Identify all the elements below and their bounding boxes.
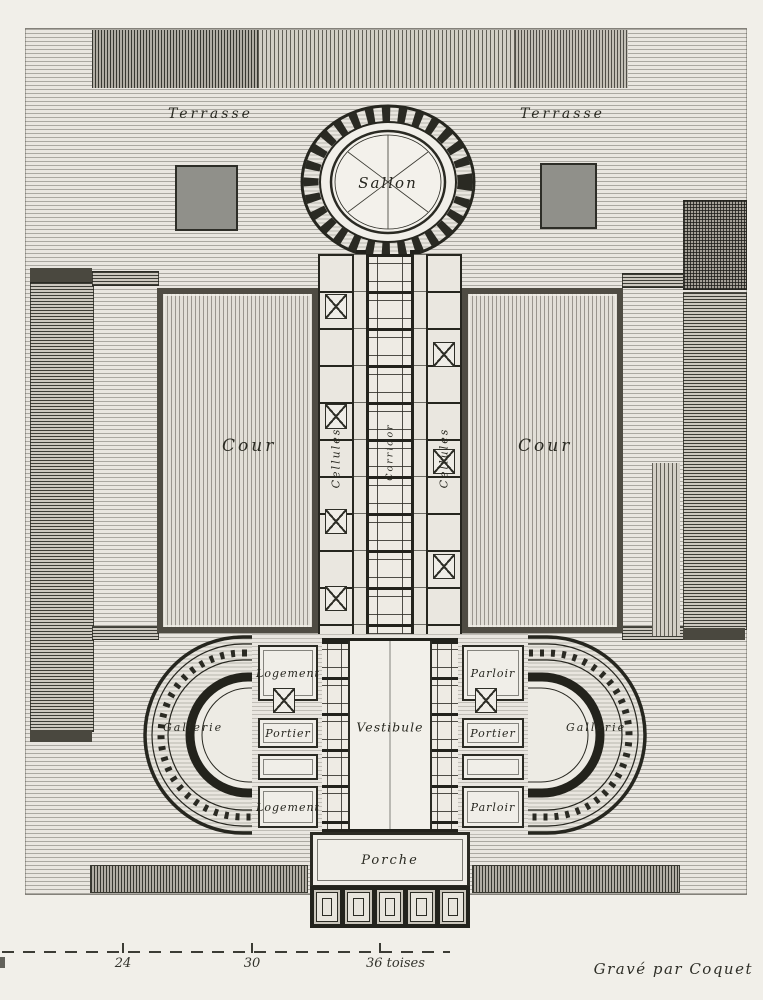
- stair-cross-icon: [325, 586, 347, 611]
- terrace-band-left: [30, 282, 94, 732]
- sallon-label: Sallon: [358, 174, 418, 192]
- courtyard-right: [462, 288, 623, 633]
- scale-line: [2, 951, 450, 953]
- engraver-credit: Gravé par Coquet: [594, 960, 753, 978]
- room-parloir-bottom: Parloir: [462, 786, 524, 828]
- gallerie-label-right: Gallerie: [566, 721, 626, 734]
- room-logement-bottom: Logement: [258, 786, 318, 828]
- porch-colonnade: [310, 886, 470, 928]
- terrasse-label-right: Terrasse: [520, 106, 605, 122]
- room-portier-left: Portier: [258, 718, 318, 748]
- scale-end-label: 36 toises: [366, 956, 456, 971]
- cellules-label-right: Cellules: [438, 428, 451, 489]
- gallerie-label-left: Gallerie: [163, 721, 223, 734]
- scale-tick: [379, 943, 381, 953]
- porch-bay: [408, 890, 434, 924]
- room-annex-right: [462, 754, 524, 780]
- stair-cross-icon: [325, 294, 347, 319]
- bottom-hatch-band-right: [472, 865, 680, 893]
- porch: Porche: [310, 832, 470, 888]
- corridor-block: Cellules Cellules Corridor: [318, 254, 462, 638]
- cour-label-right: Cour: [518, 436, 572, 456]
- terrasse-label-left: Terrasse: [168, 106, 253, 122]
- vestibule-label: Vestibule: [356, 720, 423, 735]
- logement-top-label: Logement: [256, 667, 320, 680]
- logement-bottom-label: Logement: [256, 801, 320, 814]
- stair-cross-icon: [433, 342, 455, 367]
- stair-cross-icon: [475, 688, 497, 713]
- left-band-cap-top: [30, 268, 92, 282]
- wall-strip-top-left: [92, 271, 159, 286]
- porch-label: Porche: [361, 853, 419, 868]
- vestibule-piers-left: [322, 641, 348, 829]
- crosshatch-parterre: [683, 200, 747, 290]
- terrace-band-top-right: [515, 30, 628, 88]
- corridor-label: Corridor: [385, 423, 396, 480]
- parloir-bottom-label: Parloir: [471, 801, 516, 814]
- scale-tick: [122, 943, 124, 953]
- parterre-square-right: [540, 163, 597, 229]
- portier-right-label: Portier: [470, 727, 516, 740]
- scale-edge-fragment: [0, 957, 5, 968]
- room-portier-right: Portier: [462, 718, 524, 748]
- stair-cross-icon: [325, 404, 347, 429]
- porch-bay: [377, 890, 403, 924]
- wall-strip-top-right: [622, 273, 685, 288]
- corridor-aisle-right: [414, 254, 426, 638]
- terrace-band-top-left: [92, 30, 258, 88]
- rooms-block: Logement Parloir Portier Portier Logemen…: [252, 634, 528, 836]
- vestibule-piers-right: [432, 641, 458, 829]
- scale-tick: [251, 943, 253, 953]
- stair-cross-icon: [433, 554, 455, 579]
- scale-tick-label-30: 30: [240, 956, 264, 971]
- stair-cross-icon: [325, 509, 347, 534]
- terrace-band-top-center: [258, 30, 515, 88]
- courtyard-left: [157, 288, 318, 633]
- sallon-plan: Sallon: [296, 102, 480, 264]
- right-band-cap-bottom: [683, 628, 745, 640]
- vestibule: Vestibule: [322, 638, 458, 832]
- porch-bay: [314, 890, 340, 924]
- parloir-top-label: Parloir: [471, 667, 516, 680]
- cellules-label-left: Cellules: [330, 428, 343, 489]
- stripe-strip-right: [652, 463, 680, 636]
- terrace-band-right: [683, 292, 747, 630]
- parterre-square-left: [175, 165, 238, 231]
- portier-left-label: Portier: [265, 727, 311, 740]
- porch-bay: [440, 890, 466, 924]
- corridor-aisle-left: [354, 254, 366, 638]
- vestibule-hall: Vestibule: [348, 641, 432, 829]
- scale-tick-label-24: 24: [111, 956, 135, 971]
- cour-label-left: Cour: [222, 436, 276, 456]
- stair-cross-icon: [273, 688, 295, 713]
- bottom-hatch-band-left: [90, 865, 308, 893]
- left-band-cap-bottom: [30, 730, 92, 742]
- porch-bay: [345, 890, 371, 924]
- room-annex-left: [258, 754, 318, 780]
- engraving-plate: Terrasse Terrasse Cour Cour: [0, 0, 763, 1000]
